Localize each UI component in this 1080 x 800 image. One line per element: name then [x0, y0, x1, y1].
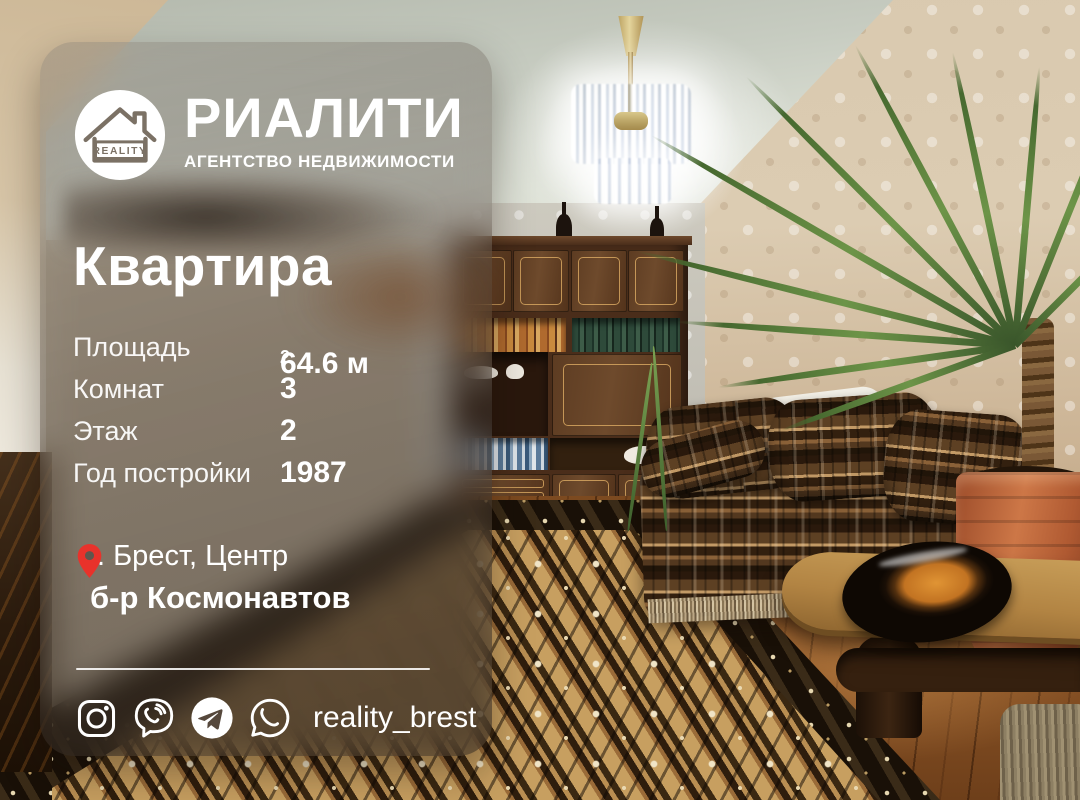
- property-label: Этаж: [73, 416, 280, 447]
- photo-cabinet-door: [571, 250, 627, 312]
- property-row-floor: Этаж 2: [73, 410, 473, 452]
- photo-figurine: [506, 364, 524, 379]
- social-handle: reality_brest: [313, 701, 476, 735]
- photo-bark-decor: [1000, 704, 1080, 800]
- property-row-area: Площадь 64.6 м2: [73, 326, 473, 368]
- agency-logo: REALITY: [73, 88, 167, 182]
- listing-graphic: REALITY РИАЛИТИ АГЕНТСТВО НЕДВИЖИМОСТИ К…: [0, 0, 1080, 800]
- agency-brand: РИАЛИТИ АГЕНТСТВО НЕДВИЖИМОСТИ: [184, 90, 464, 172]
- telegram-icon[interactable]: [189, 695, 235, 741]
- agency-tagline: АГЕНТСТВО НЕДВИЖИМОСТИ: [184, 152, 464, 172]
- property-row-rooms: Комнат 3: [73, 368, 473, 410]
- property-value: 3: [280, 372, 297, 406]
- whatsapp-icon[interactable]: [247, 695, 293, 741]
- property-row-year: Год постройки 1987: [73, 452, 473, 494]
- property-label: Площадь: [73, 332, 280, 363]
- viber-icon[interactable]: [131, 695, 177, 741]
- instagram-icon[interactable]: [73, 695, 119, 741]
- photo-books-row: [572, 318, 680, 352]
- logo-badge-text: REALITY: [93, 146, 148, 157]
- agency-name: РИАЛИТИ: [184, 90, 464, 146]
- location-street: б-р Космонавтов: [90, 580, 351, 616]
- location-text: г. Брест, Центр б-р Космонавтов: [90, 540, 351, 616]
- property-value: 1987: [280, 456, 347, 490]
- property-label: Год постройки: [73, 458, 280, 489]
- social-row: reality_brest: [73, 690, 483, 746]
- location-block: г. Брест, Центр б-р Космонавтов: [76, 540, 351, 616]
- photo-chandelier-crystals-lower: [594, 158, 672, 204]
- listing-info-card: REALITY РИАЛИТИ АГЕНТСТВО НЕДВИЖИМОСТИ К…: [40, 42, 492, 756]
- photo-cabinet-door: [513, 250, 569, 312]
- divider: [76, 668, 430, 670]
- location-city: г. Брест, Центр: [90, 540, 351, 573]
- property-value: 2: [280, 414, 297, 448]
- property-label: Комнат: [73, 374, 280, 405]
- property-table: Площадь 64.6 м2 Комнат 3 Этаж 2 Год пост…: [73, 326, 473, 506]
- listing-title: Квартира: [73, 234, 332, 298]
- photo-chandelier-hub: [614, 112, 648, 130]
